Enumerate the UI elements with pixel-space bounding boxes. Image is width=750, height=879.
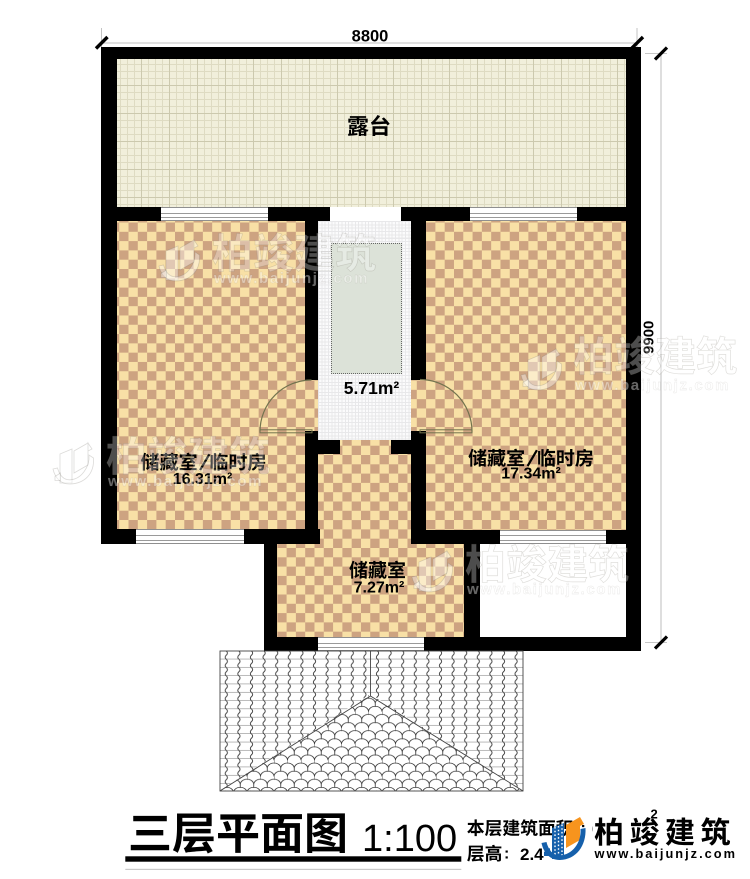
svg-text:8800: 8800 <box>352 28 389 46</box>
svg-text:www.baijunjz.com: www.baijunjz.com <box>594 846 737 861</box>
svg-text:5.71m²: 5.71m² <box>344 378 400 398</box>
svg-text:7.27m²: 7.27m² <box>354 580 405 597</box>
svg-text:www.baijunjz.com: www.baijunjz.com <box>213 270 369 287</box>
svg-text:17.34m²: 17.34m² <box>501 466 561 483</box>
svg-text:2.4: 2.4 <box>520 845 544 864</box>
svg-text:www.baijunjz.com: www.baijunjz.com <box>466 581 622 598</box>
svg-text:2: 2 <box>651 807 658 822</box>
svg-text:1:100: 1:100 <box>362 818 457 860</box>
svg-text:www.baijunjz.com: www.baijunjz.com <box>574 377 730 394</box>
svg-text::: : <box>504 846 509 863</box>
svg-text:www.baijunjz.com: www.baijunjz.com <box>107 473 263 490</box>
